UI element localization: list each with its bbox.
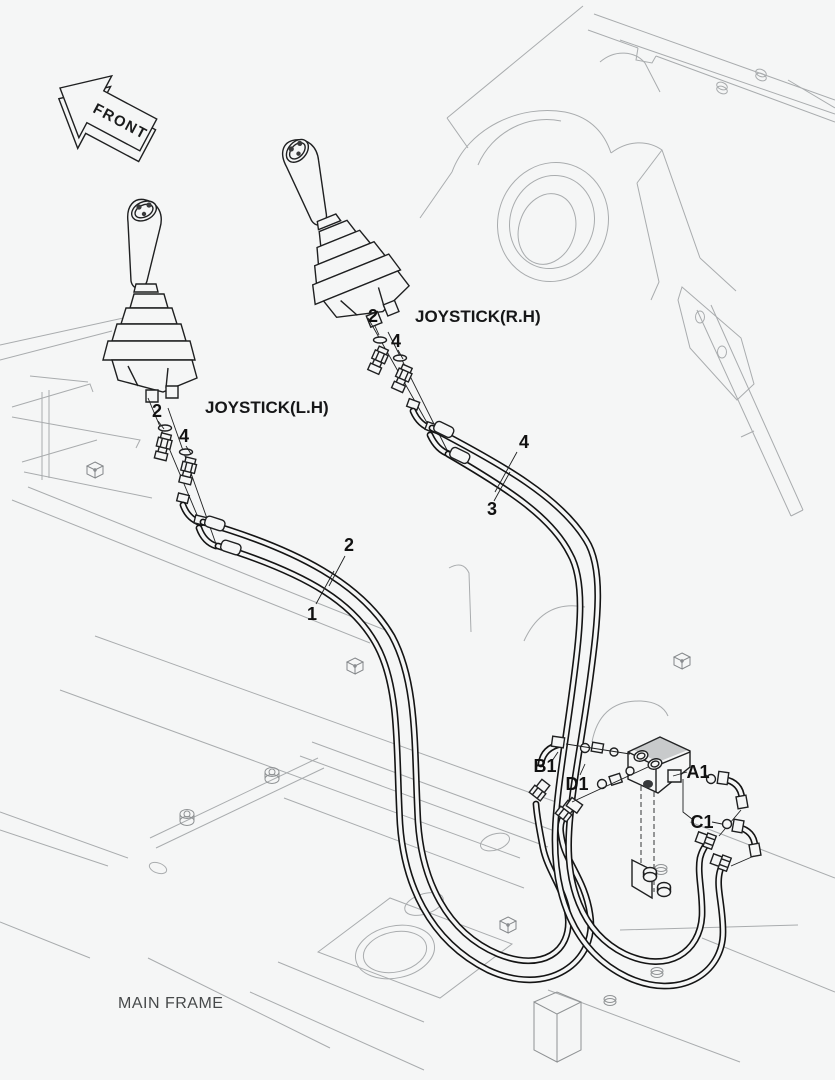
callout-lh-2: 2 <box>152 401 162 421</box>
mount-cube <box>87 462 690 933</box>
port-label-c1: C1 <box>690 812 713 832</box>
joystick-right <box>254 118 418 343</box>
callout-hose-2: 2 <box>344 535 354 555</box>
port-label-b1: B1 <box>533 756 556 776</box>
machine-structure <box>420 6 835 516</box>
callout-hose-4: 4 <box>519 432 529 452</box>
exploded-parts-diagram: FRONT <box>0 0 835 1080</box>
port-label-d1: D1 <box>565 774 588 794</box>
callout-lh-4: 4 <box>179 426 189 446</box>
callout-hose-1: 1 <box>307 604 317 624</box>
hose-end-fitting-c1 <box>710 852 732 871</box>
callout-hose-3: 3 <box>487 499 497 519</box>
joystick-left <box>103 197 197 402</box>
main-frame-label: MAIN FRAME <box>118 995 223 1012</box>
parts-diagram-page: FRONT <box>0 0 835 1080</box>
front-direction-arrow: FRONT <box>39 57 168 176</box>
callout-rh-4: 4 <box>391 331 401 351</box>
callout-rh-2: 2 <box>368 306 378 326</box>
port-label-a1: A1 <box>686 762 709 782</box>
main-frame-structure <box>0 317 835 1070</box>
joystick-left-label: JOYSTICK(L.H) <box>205 398 329 417</box>
hose-end-fitting-a1 <box>695 830 717 849</box>
joystick-right-label: JOYSTICK(R.H) <box>415 307 541 326</box>
hose-1 <box>203 522 568 961</box>
hose-end-fitting-b1 <box>529 778 551 801</box>
